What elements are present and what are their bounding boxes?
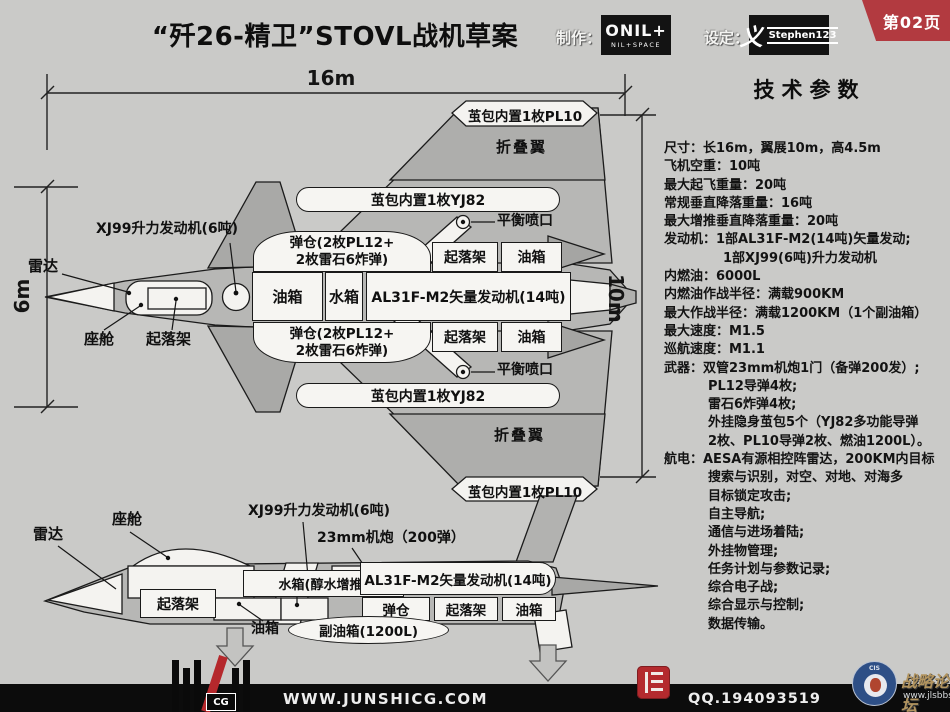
spec-line: 最大作战半径：满载1200KM（1个副油箱）	[664, 305, 948, 323]
page-title: “歼26-精卫”STOVL战机草案	[135, 16, 535, 53]
nie-seal-icon	[637, 666, 670, 699]
gear-label-top: 起落架	[146, 331, 191, 348]
pl10-pod-label-bottom: 茧包内置1枚PL10	[455, 481, 595, 501]
fuel-tank-box: 油箱	[252, 272, 323, 321]
down-arrow-icon	[530, 645, 566, 681]
weapon-bay-bottom: 弹仓(2枚PL12+ 2枚雷石6炸弹)	[253, 322, 431, 363]
fuel-tank-box: 油箱	[501, 322, 562, 352]
main-engine-box: AL31F-M2矢量发动机(14吨)	[366, 272, 571, 321]
specs-title: 技术参数	[664, 74, 948, 104]
pl10-pod-label-top: 茧包内置1枚PL10	[455, 105, 595, 125]
spec-line: 最大起飞重量：20吨	[664, 177, 948, 195]
spec-line: 最大增推垂直降落重量：20吨	[664, 213, 948, 231]
weapon-bay-top: 弹仓(2枚PL12+ 2枚雷石6炸弹)	[253, 231, 431, 272]
lift-engine-label-side: XJ99升力发动机(6吨)	[248, 503, 390, 519]
spec-line: 雷石6炸弹4枚;	[664, 396, 948, 414]
weapon-bay-line2: 2枚雷石6炸弹)	[296, 343, 388, 360]
forum-badge-icon: CIS	[852, 661, 897, 706]
spec-line: 巡航速度：M1.1	[664, 341, 948, 359]
designer-name: Stephen123	[767, 27, 839, 44]
cockpit-label-side: 座舱	[112, 511, 142, 528]
junshicg-logo: CG	[172, 656, 272, 712]
dimension-span: 10m	[604, 274, 628, 318]
spec-line: 自主导航;	[664, 506, 948, 524]
designer-glyph: 义	[740, 18, 763, 52]
spec-line: 武器：双管23mm机炮1门（备弹200发）;	[664, 360, 948, 378]
spec-line: 数据传输。	[664, 616, 948, 634]
specs-panel: 技术参数 尺寸：长16m，翼展10m，高4.5m 飞机空重：10吨 最大起飞重量…	[664, 74, 948, 634]
folding-wing-label-top: 折叠翼	[496, 139, 547, 156]
radar-label-top: 雷达	[28, 258, 58, 275]
landing-gear-box: 起落架	[432, 242, 498, 272]
spec-line: 内燃油作战半径：满载900KM	[664, 286, 948, 304]
spec-line: 发动机：1部AL31F-M2(14吨)矢量发动;	[664, 231, 948, 249]
spec-line: 综合电子战;	[664, 579, 948, 597]
forum-url: www.jlsbbs.com	[903, 691, 950, 701]
radar-label-side: 雷达	[33, 526, 63, 543]
spec-line: 通信与进场着陆;	[664, 524, 948, 542]
maker-logo: ONIL+ NIL+SPACE	[601, 15, 671, 55]
weapon-bay-line1: 弹仓(2枚PL12+	[290, 326, 395, 343]
main-engine-box-side: AL31F-M2矢量发动机(14吨)	[360, 562, 556, 595]
spec-line: 内燃油：6000L	[664, 268, 948, 286]
maker-logo-subtext: NIL+SPACE	[611, 41, 661, 49]
forum-badge-text: CIS	[853, 665, 896, 672]
water-tank-box: 水箱	[325, 272, 363, 321]
forum-name: 战略论坛	[901, 668, 950, 712]
balance-nozzle-label-bottom: 平衡喷口	[497, 362, 553, 378]
yj82-pod-top: 茧包内置1枚YJ82	[296, 187, 560, 212]
spec-line: 综合显示与控制;	[664, 597, 948, 615]
fuel-label-side: 油箱	[251, 621, 279, 637]
spec-line: 2枚、PL10导弹2枚、燃油1200L）。	[664, 433, 948, 451]
lift-engine-label-top: XJ99升力发动机(6吨)	[96, 221, 238, 237]
designer-logo: 义 Stephen123	[749, 15, 829, 55]
spec-line: 目标锁定攻击;	[664, 488, 948, 506]
spec-line: 飞机空重：10吨	[664, 158, 948, 176]
spec-line: PL12导弹4枚;	[664, 378, 948, 396]
landing-gear-box: 起落架	[432, 322, 498, 352]
page-number-badge: 第02页	[862, 0, 950, 41]
qq-contact: QQ.194093519	[688, 691, 821, 707]
yj82-pod-bottom: 茧包内置1枚YJ82	[296, 383, 560, 408]
page-number-text: 第02页	[883, 9, 941, 33]
infographic-page: “歼26-精卫”STOVL战机草案 制作： ONIL+ NIL+SPACE 设定…	[0, 0, 950, 712]
landing-gear-box-side: 起落架	[140, 589, 216, 618]
spec-line: 外挂物管理;	[664, 543, 948, 561]
landing-gear-box-side: 起落架	[434, 597, 498, 621]
spec-line: 任务计划与参数记录;	[664, 561, 948, 579]
cockpit-label-top: 座舱	[84, 331, 114, 348]
spec-line: 1部XJ99(6吨)升力发动机	[664, 250, 948, 268]
spec-line: 最大速度：M1.5	[664, 323, 948, 341]
folding-wing-label-bottom: 折叠翼	[494, 427, 545, 444]
spec-line: 常规垂直降落重量：16吨	[664, 195, 948, 213]
maker-logo-text: ONIL+	[605, 21, 667, 40]
cg-logo-text: CG	[206, 693, 236, 711]
fuel-tank-box-side: 油箱	[502, 597, 556, 621]
spec-line: 航电：AESA有源相控阵雷达，200KM内目标	[664, 451, 948, 469]
dimension-length: 16m	[301, 66, 361, 90]
dimension-width: 6m	[10, 274, 34, 318]
weapon-bay-line1: 弹仓(2枚PL12+	[290, 235, 395, 252]
weapon-bay-line2: 2枚雷石6炸弹)	[296, 252, 388, 269]
spec-line: 尺寸：长16m，翼展10m，高4.5m	[664, 140, 948, 158]
cannon-label-side: 23mm机炮（200弹）	[317, 530, 465, 546]
drop-tank-ellipse: 副油箱(1200L)	[288, 616, 449, 644]
maker-label: 制作：	[556, 27, 601, 48]
website-url: WWW.JUNSHICG.COM	[283, 690, 488, 708]
spec-line: 搜索与识别，对空、对地、对海多	[664, 469, 948, 487]
fuel-tank-box: 油箱	[501, 242, 562, 272]
spec-line: 外挂隐身茧包5个（YJ82多功能导弹	[664, 414, 948, 432]
balance-nozzle-label-top: 平衡喷口	[497, 213, 553, 229]
